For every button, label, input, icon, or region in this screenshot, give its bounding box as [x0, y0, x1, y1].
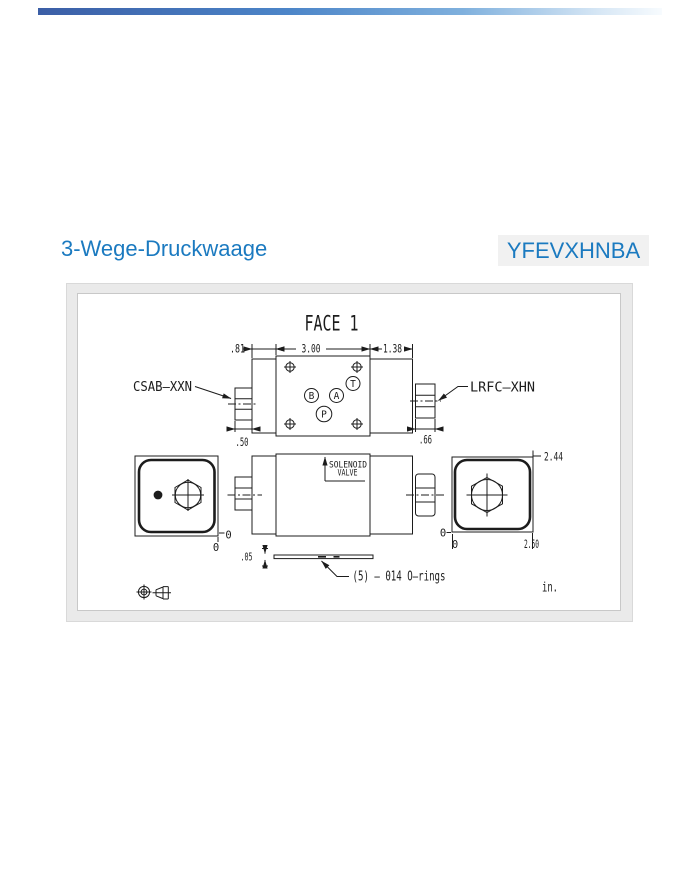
- dim-width: 2.50: [524, 537, 539, 551]
- oring-plate: .05 (5) – 014 O–rings: [241, 549, 446, 585]
- orings-note: (5) – 014 O–rings: [353, 570, 446, 585]
- port-t: T: [346, 377, 360, 391]
- zero-y-right: 0: [440, 528, 446, 540]
- dim-section-center: 3.00: [302, 342, 321, 356]
- port-p: P: [316, 406, 332, 422]
- units-label: in.: [542, 581, 558, 596]
- port-t-label: T: [350, 379, 356, 390]
- right-end-view: 2.44 0 0 2.50: [440, 450, 563, 552]
- zero-y-left: 0: [225, 530, 231, 542]
- dim-nut-left-group: .50: [227, 421, 260, 449]
- catalog-page: 3-Wege-Druckwaage YFEVXHNBA FACE 1: [0, 0, 700, 869]
- port-a-label: A: [334, 391, 340, 402]
- right-fitting-label: LRFC–XHN: [470, 381, 535, 396]
- port-a: A: [330, 389, 344, 403]
- right-fitting-leader: [439, 387, 469, 401]
- projection-cone-icon: [153, 587, 172, 599]
- zero-x-right: 0: [452, 539, 458, 551]
- valve-drawing: FACE 1: [78, 294, 620, 610]
- thickness-arrows: [262, 549, 268, 567]
- port-b-label: B: [309, 391, 315, 402]
- orings-leader: [322, 561, 350, 577]
- dim-width-group: 0 0 2.50: [440, 528, 539, 552]
- drawing-canvas: FACE 1: [77, 293, 621, 611]
- dim-height-group: 2.44: [533, 450, 564, 464]
- dim-nut-left: .50: [236, 435, 249, 449]
- zero-x-left: 0: [213, 542, 219, 554]
- left-connector-view: 0 0: [135, 456, 232, 554]
- dim-section-left: .81: [230, 342, 245, 356]
- top-view: B A T P: [133, 342, 535, 450]
- solenoid-callout: SOLENOID VALVE: [325, 457, 367, 481]
- dim-nut-right: .66: [419, 433, 432, 447]
- port-p-label: P: [321, 409, 327, 420]
- left-nut-front: [235, 477, 252, 510]
- solenoid-label-line2: VALVE: [338, 469, 358, 479]
- projection-symbols: [137, 585, 172, 600]
- left-fitting-leader: [195, 387, 231, 399]
- dim-thickness: .05: [241, 551, 253, 564]
- page-title: 3-Wege-Druckwaage: [61, 236, 267, 262]
- datum-target-icon: [137, 585, 152, 600]
- left-nut-top: [228, 388, 258, 420]
- dim-section-right: 1.38: [383, 342, 402, 356]
- part-number: YFEVXHNBA: [507, 238, 640, 264]
- right-nut-top: [410, 384, 441, 418]
- part-number-badge: YFEVXHNBA: [498, 235, 649, 266]
- top-gradient-bar: [38, 8, 662, 15]
- view-title: FACE 1: [305, 312, 359, 336]
- drawing-panel: FACE 1: [66, 283, 633, 622]
- left-fitting-label: CSAB–XXN: [133, 380, 192, 395]
- front-view: SOLENOID VALVE: [228, 454, 445, 536]
- connector-pin: [154, 491, 163, 500]
- port-b: B: [305, 389, 319, 403]
- dim-height: 2.44: [544, 450, 563, 464]
